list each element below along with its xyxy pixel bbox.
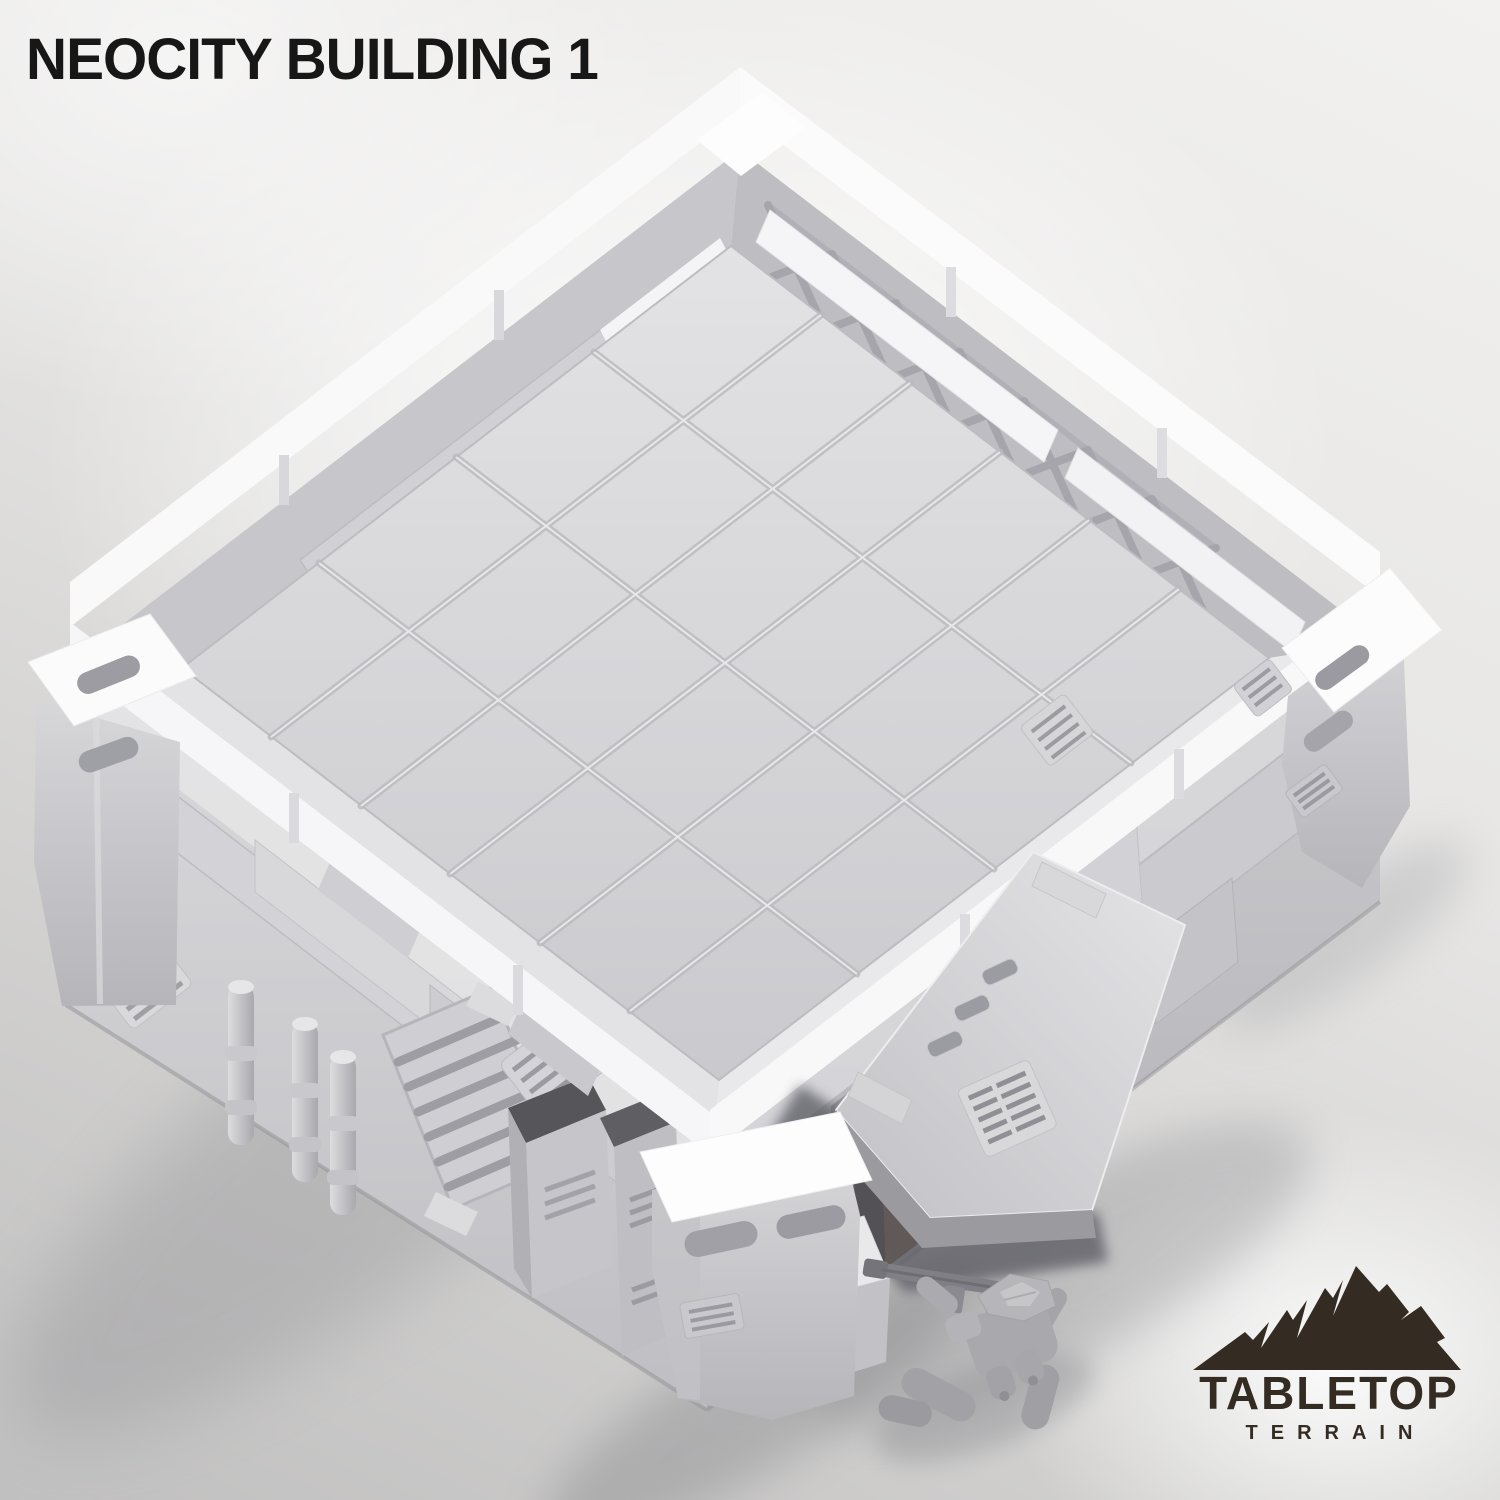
duct-box-open <box>508 1076 612 1298</box>
corner-pillar-west <box>28 614 196 1006</box>
brand-name-secondary: TERRAIN <box>1191 1422 1480 1445</box>
corner-pillar-south <box>640 1112 872 1420</box>
product-title: NEOCITY BUILDING 1 <box>26 26 598 93</box>
mountain-icon <box>1193 1266 1465 1374</box>
product-showcase: NEOCITY BUILDING 1 TABLETOP TERRAIN <box>0 0 1500 1500</box>
brand-name-primary: TABLETOP <box>1178 1370 1480 1416</box>
brand-logo: TABLETOP TERRAIN <box>1178 1266 1480 1445</box>
